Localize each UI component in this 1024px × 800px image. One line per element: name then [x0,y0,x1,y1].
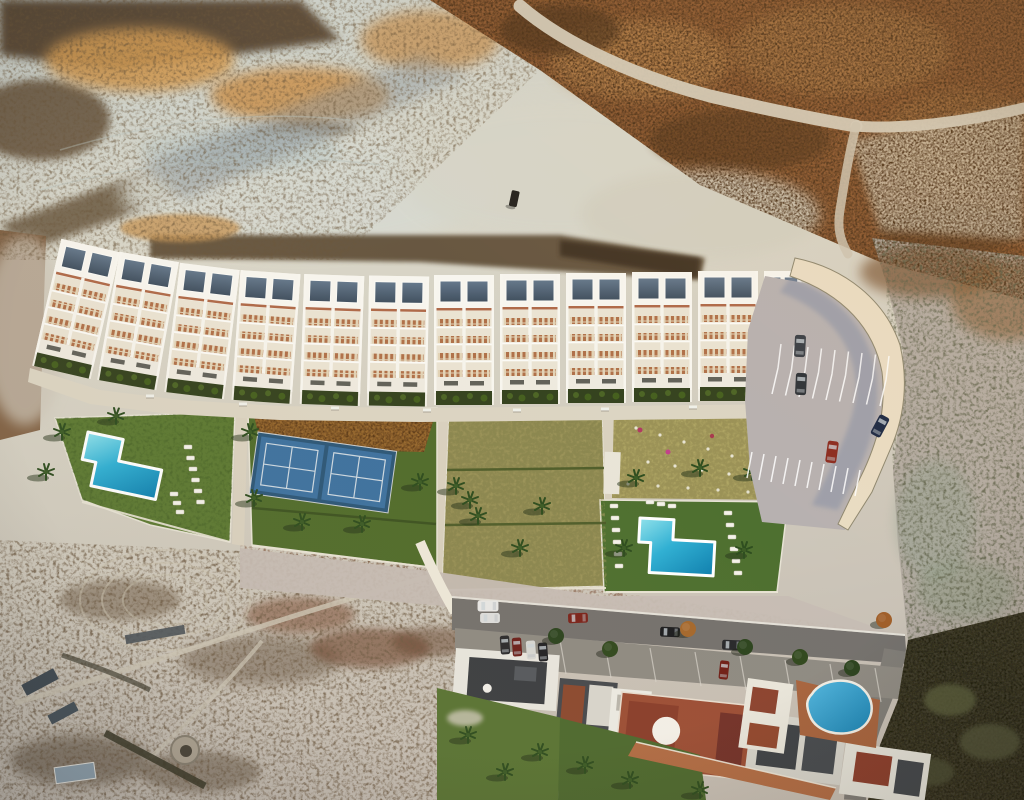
aerial-site-photo [0,0,1024,800]
atmosphere [0,0,1024,800]
vignette-overlay [0,0,1024,800]
aerial-site-plan-render [0,0,1024,800]
